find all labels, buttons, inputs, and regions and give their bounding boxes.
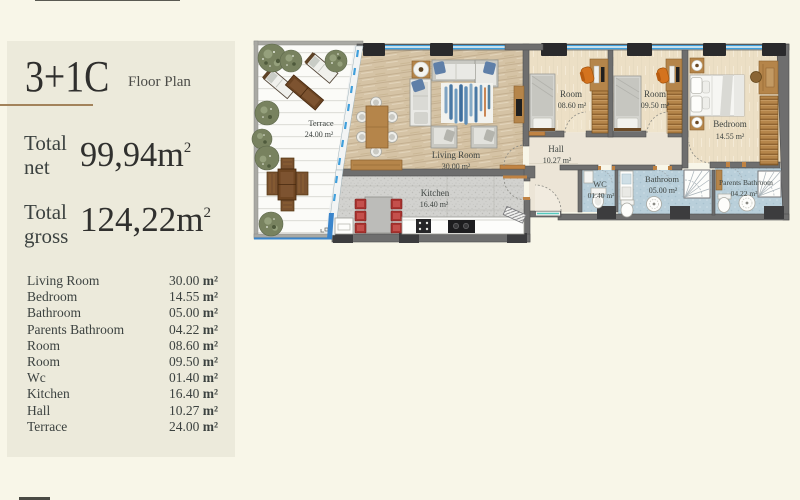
svg-text:16.40 m²: 16.40 m² [420,200,449,209]
svg-text:08.60 m²: 08.60 m² [558,101,587,110]
svg-text:Room: Room [560,89,582,99]
svg-text:01.40 m²: 01.40 m² [588,191,616,200]
svg-text:09.50 m²: 09.50 m² [641,101,670,110]
svg-text:10.27 m²: 10.27 m² [543,156,572,165]
svg-text:Living Room: Living Room [432,150,480,160]
svg-text:Parents Bathroom: Parents Bathroom [719,178,773,187]
svg-text:Terrace: Terrace [308,118,334,128]
svg-text:24.00 m²: 24.00 m² [305,130,334,139]
svg-text:Hall: Hall [548,144,564,154]
svg-text:30.00 m²: 30.00 m² [442,162,471,171]
svg-text:04.22 m²: 04.22 m² [731,189,759,198]
svg-text:14.55 m²: 14.55 m² [716,132,745,141]
svg-text:Kitchen: Kitchen [421,188,450,198]
svg-text:Bathroom: Bathroom [645,174,679,184]
svg-text:05.00 m²: 05.00 m² [649,186,678,195]
svg-text:Room: Room [644,89,666,99]
svg-text:Bedroom: Bedroom [713,119,747,129]
svg-text:WC: WC [593,179,607,189]
